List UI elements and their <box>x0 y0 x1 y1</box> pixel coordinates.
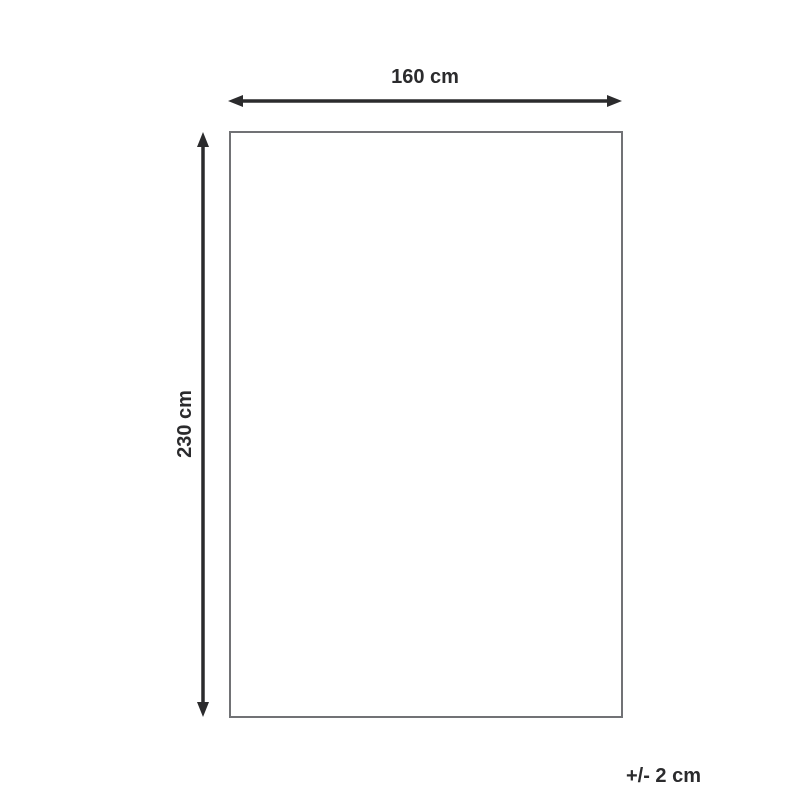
width-dimension-arrow <box>227 93 623 109</box>
dimension-diagram: 160 cm 230 cm +/- 2 cm <box>0 0 800 800</box>
arrowhead-down-icon <box>197 702 209 717</box>
height-dimension-label: 230 cm <box>173 390 197 458</box>
tolerance-label: +/- 2 cm <box>626 764 701 788</box>
width-dimension-label: 160 cm <box>227 65 623 89</box>
height-dimension-arrow <box>195 131 211 718</box>
arrowhead-up-icon <box>197 132 209 147</box>
product-outline-rectangle <box>229 131 623 718</box>
arrowhead-left-icon <box>228 95 243 107</box>
arrowhead-right-icon <box>607 95 622 107</box>
